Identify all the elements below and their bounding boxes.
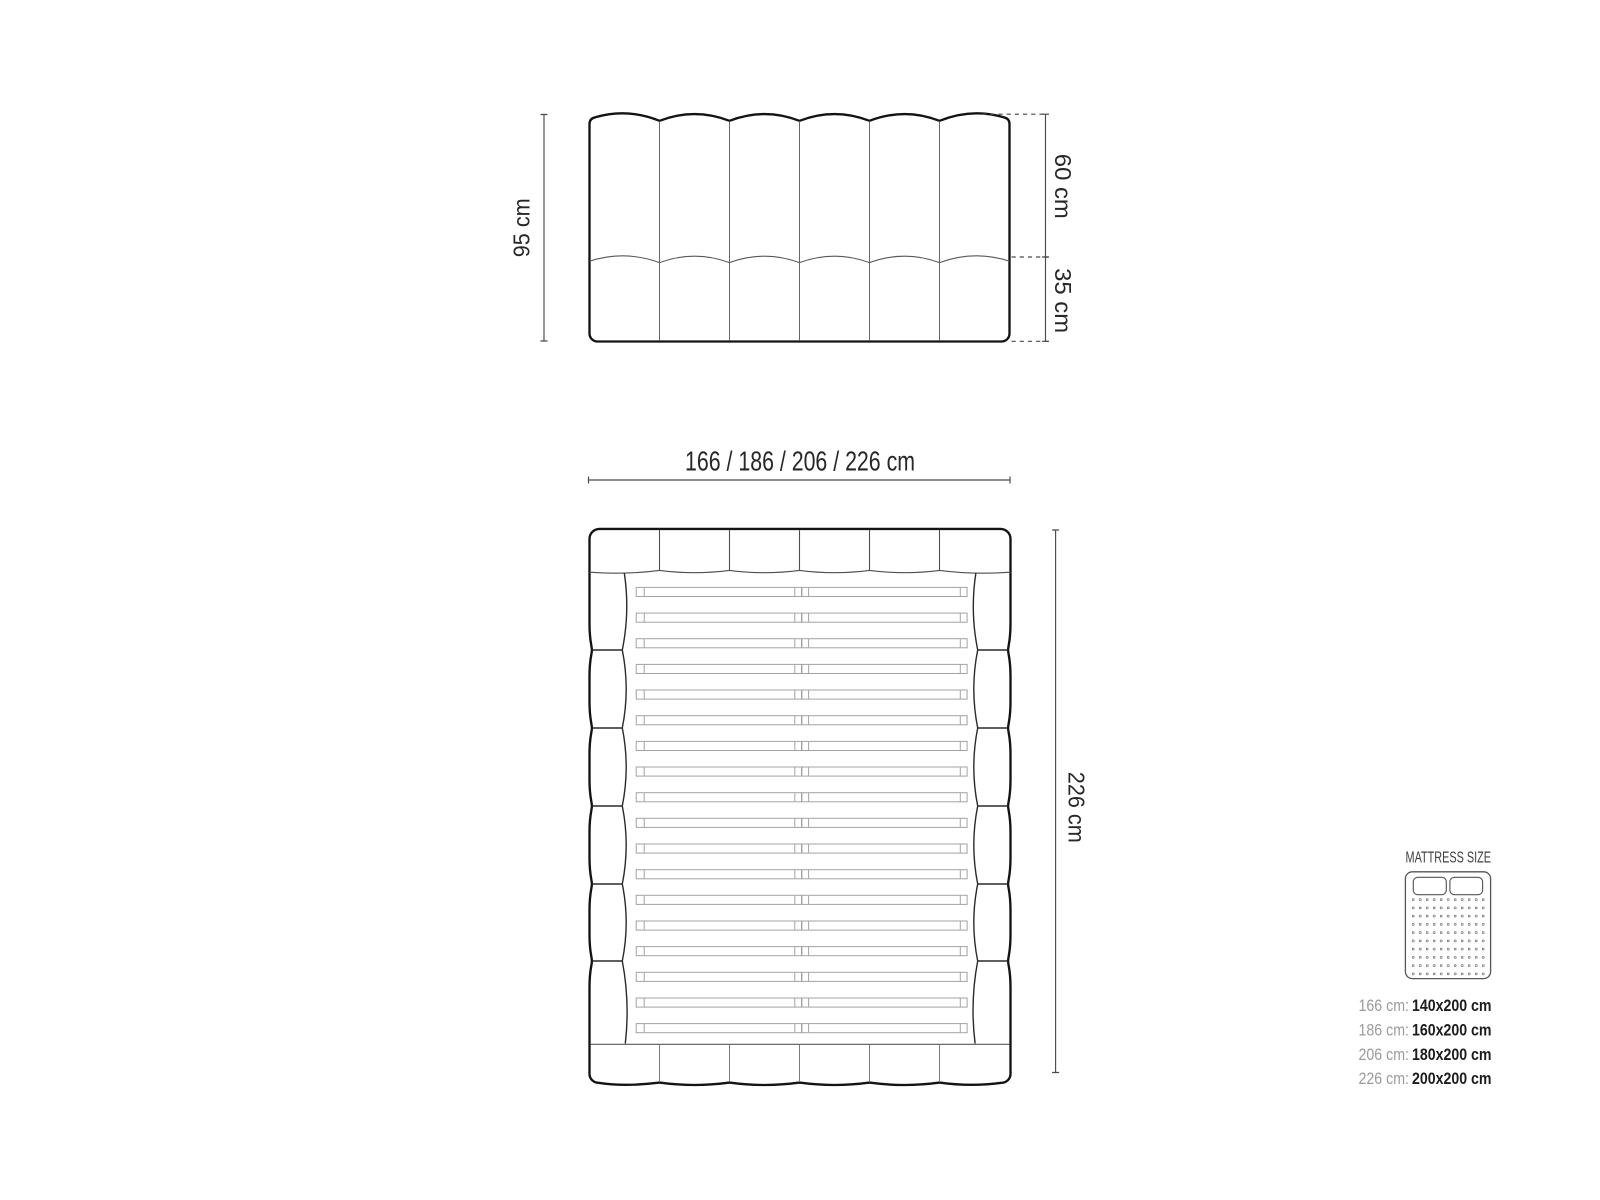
svg-text:95 cm: 95 cm: [509, 198, 535, 257]
svg-text:35 cm: 35 cm: [1050, 268, 1076, 333]
svg-text:160x200 cm: 160x200 cm: [1412, 1021, 1492, 1039]
svg-text:60 cm: 60 cm: [1050, 154, 1076, 219]
svg-text:226 cm:: 226 cm:: [1359, 1070, 1410, 1088]
svg-text:140x200 cm: 140x200 cm: [1412, 997, 1492, 1015]
svg-text:206 cm:: 206 cm:: [1359, 1046, 1410, 1064]
svg-text:166 cm:: 166 cm:: [1359, 997, 1410, 1015]
svg-text:200x200 cm: 200x200 cm: [1412, 1070, 1492, 1088]
svg-text:186 cm:: 186 cm:: [1359, 1021, 1410, 1039]
svg-text:180x200 cm: 180x200 cm: [1412, 1046, 1492, 1064]
svg-text:MATTRESS SIZE: MATTRESS SIZE: [1406, 850, 1492, 867]
svg-text:166 / 186 / 206 / 226 cm: 166 / 186 / 206 / 226 cm: [685, 446, 915, 477]
svg-text:226 cm: 226 cm: [1064, 772, 1090, 843]
